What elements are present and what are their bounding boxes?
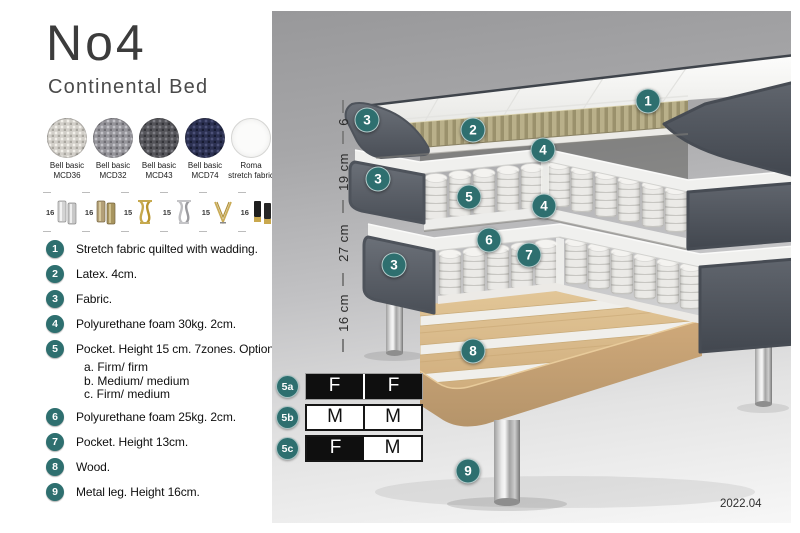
callout-badge: 6 [477,228,502,253]
leg-option: 15 [124,192,157,232]
firmness-bar: F M [305,435,423,462]
part-number-badge: 9 [46,483,64,501]
fabric-code: MCD74 [188,171,222,181]
page-title: No4 [46,14,147,72]
fabric-swatch: Bell basic MCD43 [136,118,182,180]
callout-badge: 3 [366,167,391,192]
firmness-cell: F [306,374,363,399]
fabric-swatch-label: Bell basic MCD43 [142,161,176,180]
leg-icon-cylinder-bronze [94,198,118,226]
part-number-badge: 4 [46,315,64,333]
ruler-tick [342,200,344,213]
measurement-ruler: 6 19 cm 27 cm 16 cm [328,97,358,355]
fabric-swatch-label: Roma stretch fabric [228,161,274,180]
list-item: 9 Metal leg. Height 16cm. [46,483,274,501]
list-item: 7 Pocket. Height 13cm. [46,433,274,451]
callout-badge: 4 [532,194,557,219]
fabric-code: stretch fabric [228,171,274,181]
fabric-swatch: Bell basic MCD32 [90,118,136,180]
callout-badge: 5 [457,185,482,210]
list-item: 4 Polyurethane foam 30kg. 2cm. [46,315,274,333]
firmness-bar: F F [305,373,423,400]
fabric-swatch-label: Bell basic MCD36 [50,161,84,180]
firmness-bar: M M [305,404,423,431]
version-stamp: 2022.04 [720,498,762,510]
list-item: 1 Stretch fabric quilted with wadding. [46,240,274,258]
fabric-swatch-icon [185,118,225,158]
fabric-swatch: Bell basic MCD74 [182,118,228,180]
list-item: 8 Wood. [46,458,274,476]
fabric-swatch-icon [139,118,179,158]
bed-diagram-panel: 6 19 cm 27 cm 16 cm 1 2 3 3 3 4 4 5 6 7 … [272,11,791,523]
fabric-name: Bell basic [96,161,130,171]
leg-size-label: 15 [202,208,210,217]
firmness-options: 5a F F 5b M M 5c F M [276,373,423,466]
firmness-cell: F [365,374,422,399]
fabric-swatch-icon [231,118,271,158]
fabric-code: MCD32 [96,171,130,181]
leg-option: 15 [202,192,235,232]
part-text: Pocket. Height 15 cm. 7zones. Option: [76,340,277,358]
firmness-cell: M [364,437,421,460]
firmness-cell: M [307,406,363,429]
firmness-row: 5c F M [276,435,423,462]
part-text: Fabric. [76,290,112,308]
page-subtitle: Continental Bed [48,76,208,99]
callout-badge: 1 [636,89,661,114]
part-text: Latex. 4cm. [76,265,137,283]
leg-icon-hairpin-gold [211,198,235,226]
fabric-swatch-icon [93,118,133,158]
part-number-badge: 3 [46,290,64,308]
leg-icon-twisted-gold [133,198,157,226]
fabric-swatch: Roma stretch fabric [228,118,274,180]
part-text: Pocket. Height 13cm. [76,433,188,451]
leg-option: 16 [85,192,118,232]
callout-badge: 8 [461,339,486,364]
ruler-tick [342,100,344,113]
list-item: 2 Latex. 4cm. [46,265,274,283]
leg-icon-cylinder-black-gold [250,198,274,226]
callout-badge: 2 [461,118,486,143]
part-number-badge: 5 [46,340,64,358]
firmness-badge: 5b [276,406,299,429]
fabric-name: Bell basic [188,161,222,171]
measurement-label: 6 [336,118,351,126]
fabric-name: Roma [228,161,274,171]
leg-size-label: 16 [85,208,93,217]
fabric-swatch-label: Bell basic MCD74 [188,161,222,180]
callout-badge: 3 [355,108,380,133]
firmness-badge: 5a [276,375,299,398]
fabric-code: MCD43 [142,171,176,181]
part-text: Polyurethane foam 25kg. 2cm. [76,408,236,426]
leg-size-label: 16 [46,208,54,217]
callout-badge: 4 [531,138,556,163]
parts-list: 1 Stretch fabric quilted with wadding. 2… [46,240,274,508]
callout-badge: 9 [456,459,481,484]
part-option: b. Medium/ medium [84,375,274,389]
measurement-label: 27 cm [336,224,351,262]
part-text: Wood. [76,458,110,476]
fabric-swatch-row: Bell basic MCD36 Bell basic MCD32 Bell b… [44,118,278,180]
leg-icon-twisted-silver [172,198,196,226]
firmness-badge: 5c [276,437,299,460]
part-number-badge: 7 [46,433,64,451]
ruler-tick [342,273,344,286]
fabric-name: Bell basic [142,161,176,171]
callout-badge: 7 [517,243,542,268]
leg-size-label: 16 [241,208,249,217]
fabric-swatch-label: Bell basic MCD32 [96,161,130,180]
part-text: Stretch fabric quilted with wadding. [76,240,258,258]
leg-option: 15 [163,192,196,232]
spec-panel: No4 Continental Bed Bell basic MCD36 Bel… [0,0,280,533]
list-item: 5 Pocket. Height 15 cm. 7zones. Option: [46,340,274,358]
firmness-cell: M [363,406,421,429]
fabric-swatch: Bell basic MCD36 [44,118,90,180]
list-item: 6 Polyurethane foam 25kg. 2cm. [46,408,274,426]
leg-options-row: 16 16 15 [46,192,274,232]
part-options: a. Firm/ firm b. Medium/ medium c. Firm/… [84,361,274,402]
part-number-badge: 2 [46,265,64,283]
fabric-code: MCD36 [50,171,84,181]
measurement-label: 16 cm [336,294,351,332]
ruler-tick [342,339,344,352]
callout-badge: 3 [382,253,407,278]
firmness-cell: F [307,437,364,460]
firmness-row: 5a F F [276,373,423,400]
leg-option: 16 [46,192,79,232]
fabric-name: Bell basic [50,161,84,171]
ruler-tick [342,131,344,144]
part-option: a. Firm/ firm [84,361,274,375]
measurement-label: 19 cm [336,153,351,191]
list-item: 3 Fabric. [46,290,274,308]
leg-icon-cylinder-silver [55,198,79,226]
fabric-swatch-icon [47,118,87,158]
part-text: Polyurethane foam 30kg. 2cm. [76,315,236,333]
firmness-row: 5b M M [276,404,423,431]
part-number-badge: 1 [46,240,64,258]
leg-size-label: 15 [124,208,132,217]
part-number-badge: 6 [46,408,64,426]
leg-option: 16 [241,192,274,232]
part-text: Metal leg. Height 16cm. [76,483,200,501]
part-option: c. Firm/ medium [84,388,274,402]
part-number-badge: 8 [46,458,64,476]
leg-size-label: 15 [163,208,171,217]
